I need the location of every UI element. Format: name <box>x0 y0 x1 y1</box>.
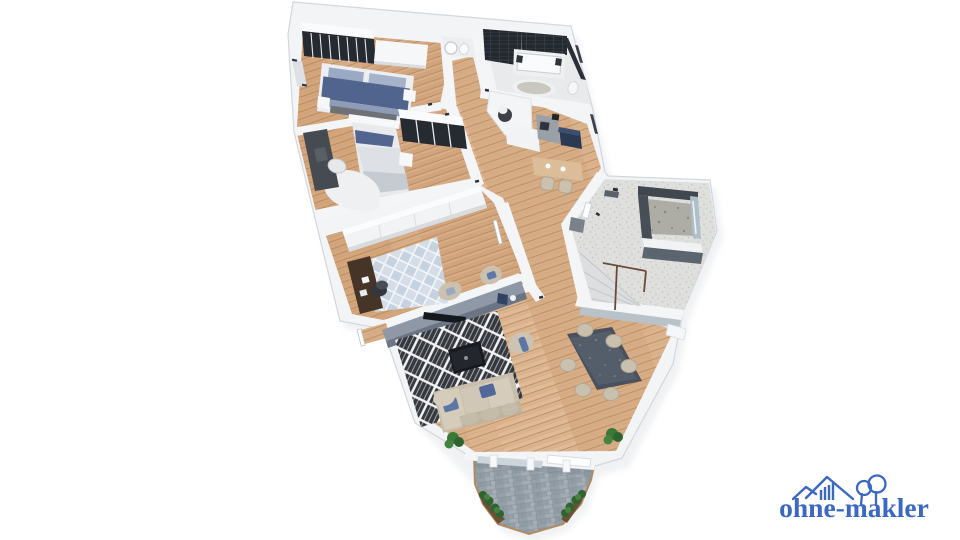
svg-text:ohne-makler: ohne-makler <box>779 492 929 523</box>
